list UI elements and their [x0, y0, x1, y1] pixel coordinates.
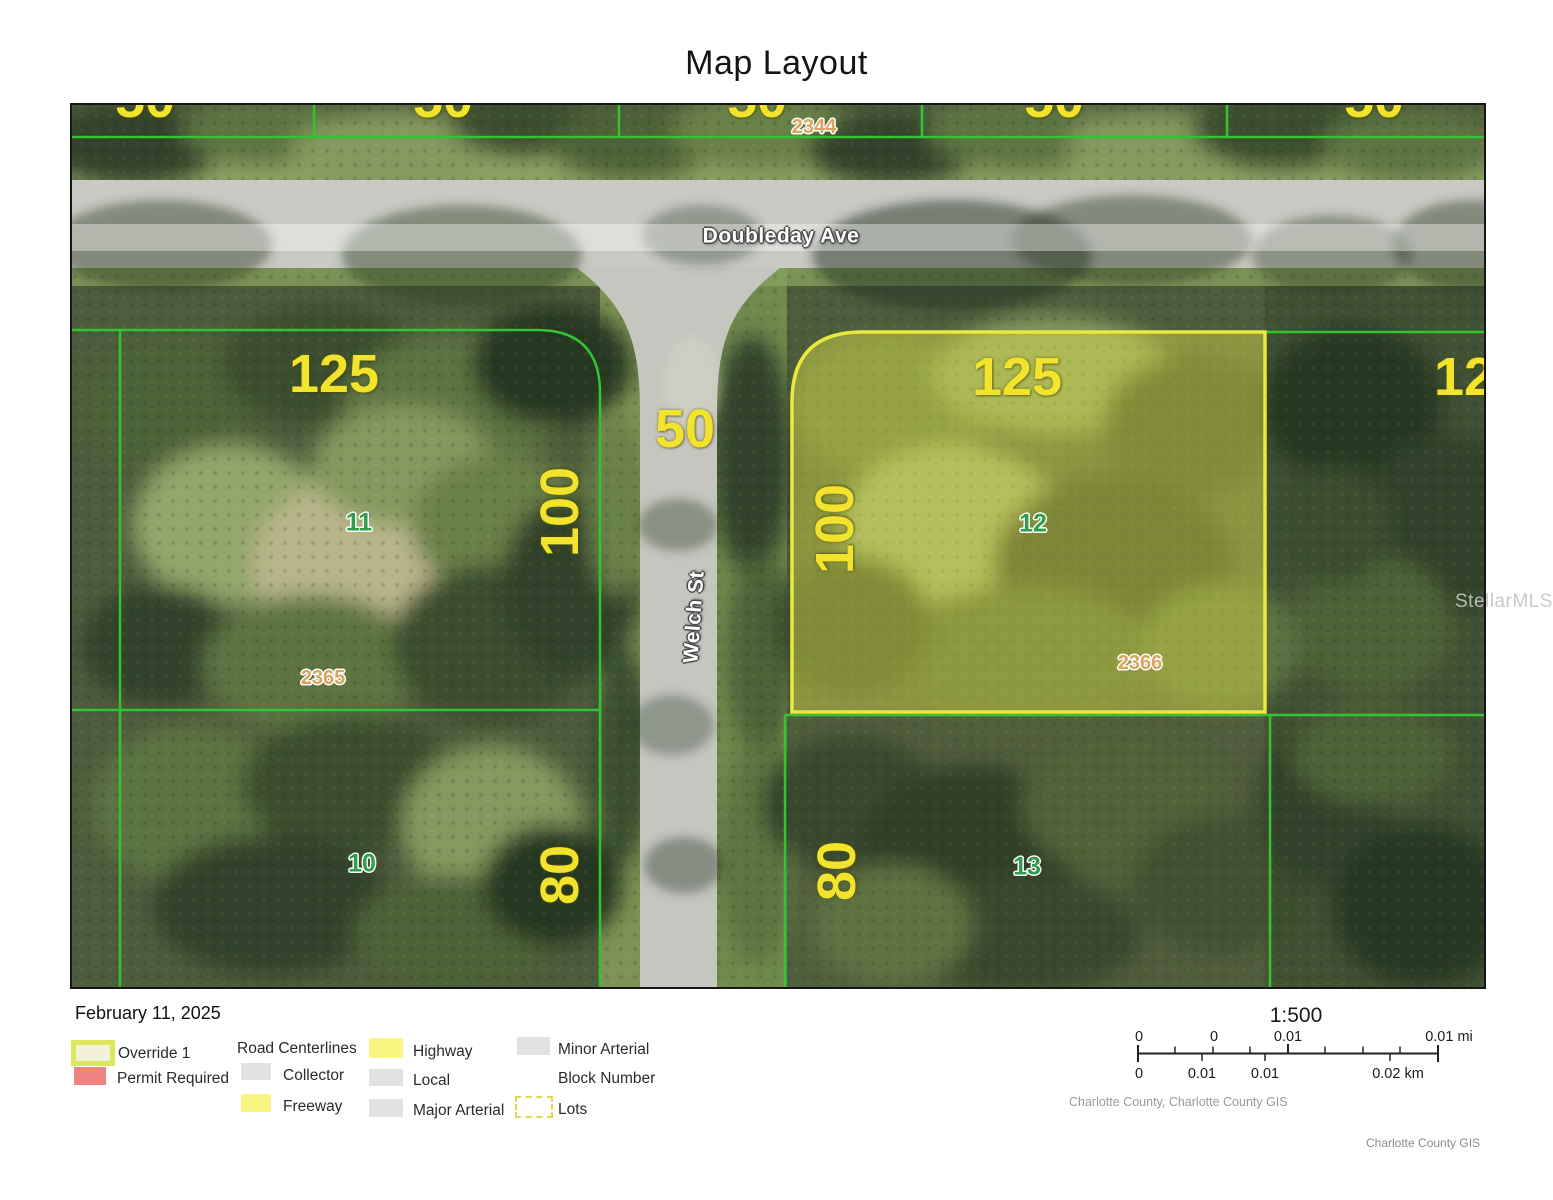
street-label-doubleday-ave: Doubleday Ave [703, 226, 860, 247]
edge-dimension-label: 50 [115, 103, 175, 126]
legend-label-major-arterial: Major Arterial [413, 1102, 504, 1120]
scale-km-tick-label: 0 [1135, 1066, 1143, 1082]
legend-swatch-major-arterial [369, 1099, 403, 1117]
legend-label-road-centerlines: Road Centerlines [237, 1040, 357, 1058]
lot13-number: 13 [1013, 855, 1041, 880]
legend-swatch-lots [515, 1096, 553, 1118]
lot11-depth-label: 100 [533, 467, 587, 557]
legend-label-block-number: Block Number [558, 1070, 655, 1088]
scale-km-tick-label: 0.02 km [1372, 1066, 1424, 1082]
legend-label-highway: Highway [413, 1043, 472, 1061]
legend-swatch-local [369, 1069, 403, 1086]
lot12-depth-label: 100 [808, 484, 862, 574]
legend-label-freeway: Freeway [283, 1098, 342, 1116]
edge-dimension-label: 50 [727, 103, 787, 126]
legend-label-override-1: Override 1 [118, 1045, 190, 1063]
legend-swatch-highway [369, 1038, 403, 1058]
legend-label-permit-required: Permit Required [117, 1070, 229, 1088]
attribution-inline: Charlotte County, Charlotte County GIS [1069, 1095, 1288, 1109]
map-date: February 11, 2025 [75, 1003, 221, 1024]
map-canvas: 50 50 50 50 50 2344 Doubleday Ave Welch … [70, 103, 1486, 989]
block-number-2365: 2365 [301, 668, 346, 688]
legend-swatch-collector [241, 1063, 271, 1080]
legend-swatch-override-1 [71, 1040, 115, 1066]
lot12-width-label: 125 [972, 350, 1062, 404]
legend-label-lots: Lots [558, 1101, 587, 1119]
edge-dimension-label: 50 [1024, 103, 1084, 126]
page-title: Map Layout [0, 44, 1553, 83]
map-layout-page: Map Layout [0, 0, 1553, 1200]
edge-dimension-label: 50 [1344, 103, 1404, 126]
lot10-depth-label: 80 [533, 845, 587, 905]
legend-swatch-permit-required [74, 1067, 106, 1085]
scale-km-tick-label: 0.01 [1251, 1066, 1279, 1082]
lot12-number: 12 [1019, 512, 1047, 537]
legend-swatch-minor-arterial [517, 1037, 550, 1055]
road-width-label: 50 [655, 402, 715, 456]
block-number-2344: 2344 [792, 117, 837, 137]
legend-swatch-freeway [241, 1094, 271, 1112]
edge-dimension-label: 50 [413, 103, 473, 126]
legend-label-collector: Collector [283, 1067, 344, 1085]
watermark: StellarMLS [1455, 591, 1553, 613]
legend-label-minor-arterial: Minor Arterial [558, 1041, 649, 1059]
legend-label-local: Local [413, 1072, 450, 1090]
lot11-width-label: 125 [289, 347, 379, 401]
right-edge-dimension-label: 125 [1434, 350, 1486, 404]
scale-bar [1125, 1025, 1455, 1070]
lot13-depth-label: 80 [810, 841, 864, 901]
attribution-corner: Charlotte County GIS [1366, 1136, 1480, 1150]
block-number-2366: 2366 [1118, 653, 1163, 673]
lot10-number: 10 [348, 852, 376, 877]
scale-km-tick-label: 0.01 [1188, 1066, 1216, 1082]
lot11-number: 11 [346, 511, 372, 536]
